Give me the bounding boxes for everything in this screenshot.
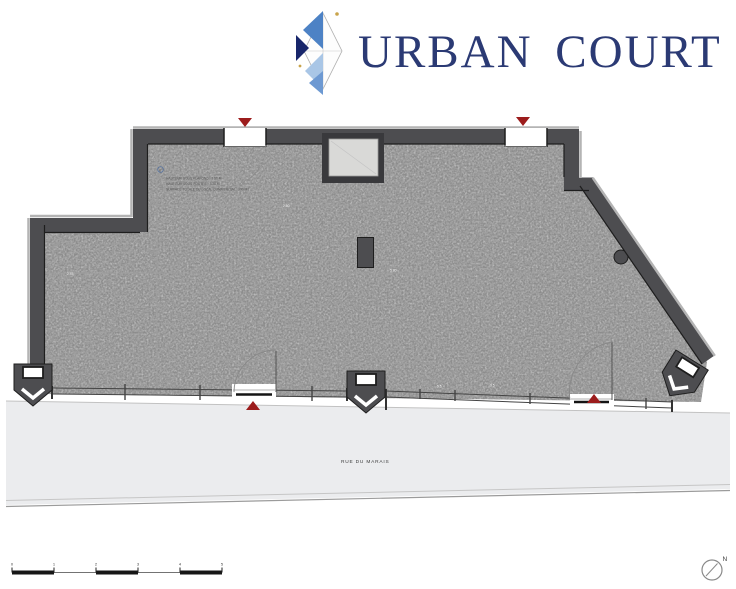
floor-plan: 2.60 2.45 5.80 5.5 9.5 [0, 0, 736, 589]
dim-label: 2.45 [67, 272, 74, 276]
scale-segment [180, 571, 222, 575]
scale-segment [12, 571, 54, 575]
dim-label: 5.5 [437, 385, 442, 389]
dim-label: 2.60 [283, 204, 290, 208]
scale-label: 5 [221, 562, 224, 567]
scale-bar: 0 1 2 3 4 5 [11, 562, 224, 575]
entrance-marker-icon [516, 117, 530, 126]
street-name-label: RUE DU MARAIS [341, 459, 390, 465]
dim-label: 9.5 [490, 384, 495, 388]
door-opening [505, 128, 547, 147]
street-area [6, 401, 730, 507]
scale-label: 0 [11, 562, 14, 567]
annotation-line: HAUTEUR SOUS POUTRE : 3.20 M [166, 182, 220, 186]
entrance-marker-icon [238, 118, 252, 127]
pier-notch [356, 374, 376, 385]
street-surface [6, 401, 730, 505]
door-opening [232, 384, 276, 398]
column-rect [358, 238, 374, 268]
scale-label: 4 [179, 562, 182, 567]
scale-label: 1 [53, 562, 56, 567]
annotation-line: SURFACE TOTALE DU LOCAL COMMERCIAL : 390… [166, 188, 249, 192]
north-label: N [723, 556, 728, 563]
pier-left [14, 364, 52, 406]
door-opening [224, 128, 266, 147]
annotation-line: HAUTEUR SOUS PLAFOND : 3.50 M [166, 177, 222, 181]
scale-segment [96, 571, 138, 575]
scale-label: 2 [95, 562, 98, 567]
pier-notch [23, 367, 43, 378]
scale-label: 3 [137, 562, 140, 567]
brochure-page: URBAN COURT 2 [0, 0, 736, 589]
shaft-box [322, 133, 384, 183]
dim-label: 5.80 [390, 269, 397, 273]
north-indicator: N [702, 556, 728, 580]
